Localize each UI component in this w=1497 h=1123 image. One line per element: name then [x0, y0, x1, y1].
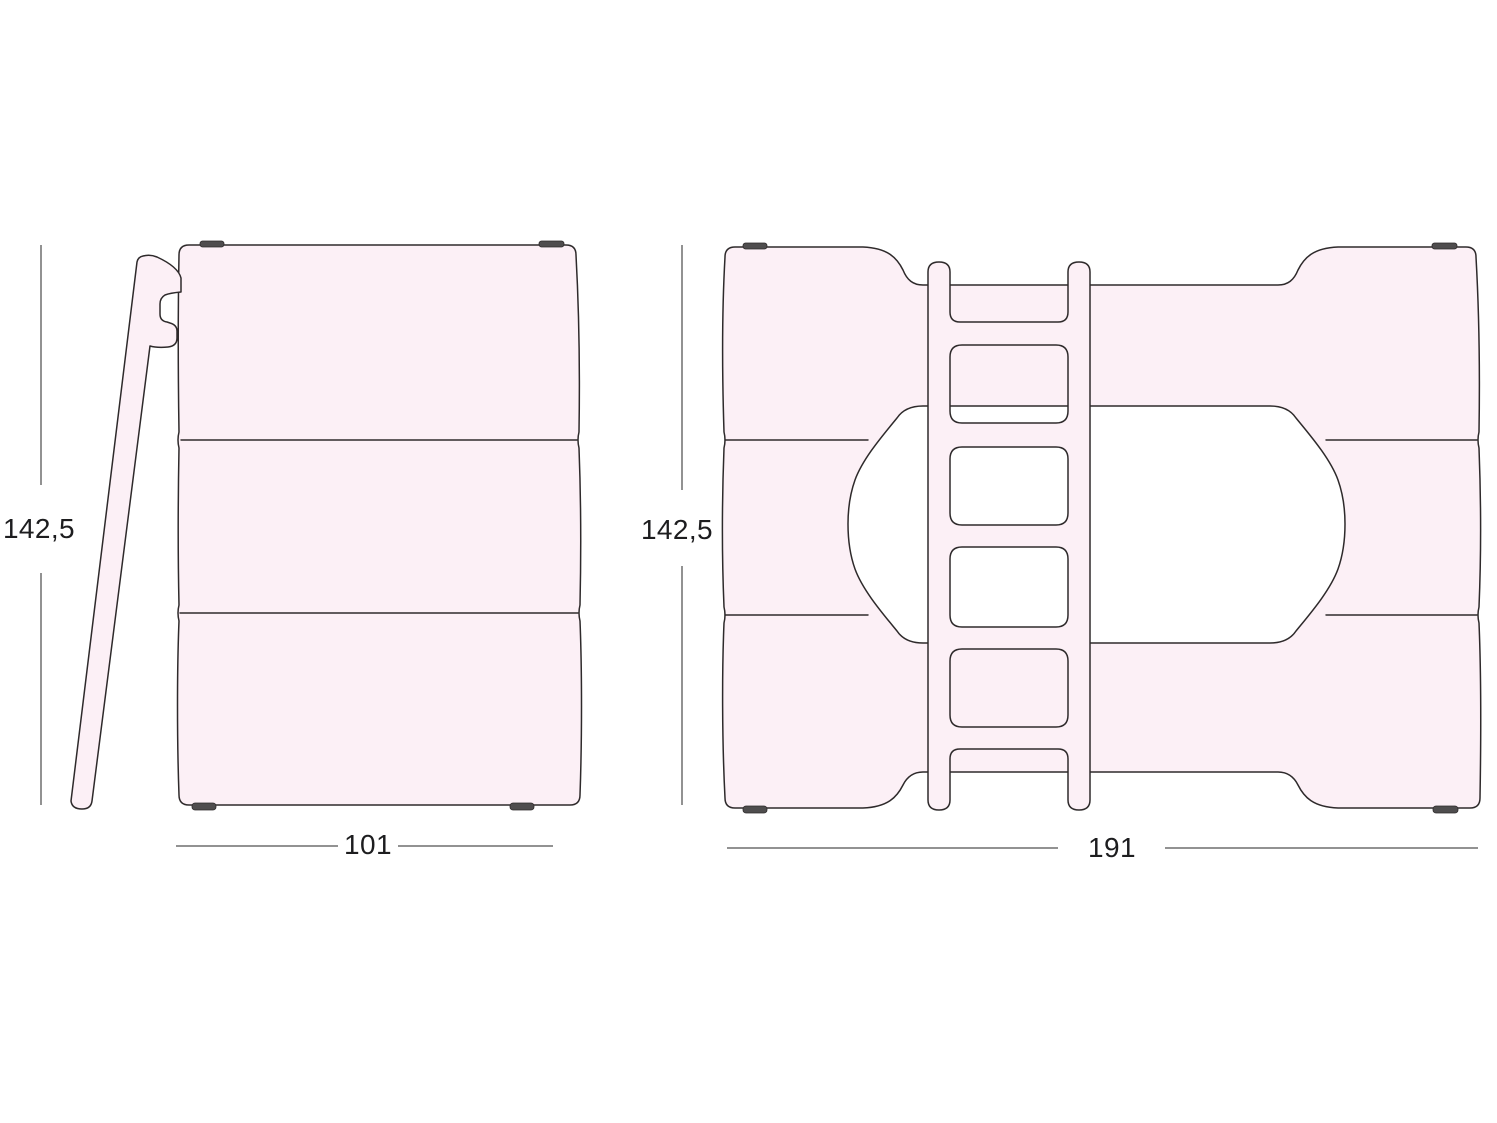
front-view-ladder	[928, 262, 1090, 810]
front-height-dimension-label: 142,5	[641, 514, 713, 546]
drawing-svg	[0, 0, 1497, 1123]
front-view-foot-right	[1433, 806, 1458, 813]
side-view-top-tab-right	[539, 241, 564, 247]
side-view-ladder	[71, 255, 181, 809]
side-width-dimension-label: 101	[344, 829, 392, 861]
side-view-top-tab-left	[200, 241, 224, 247]
technical-drawing-canvas: 142,5 101 142,5 191	[0, 0, 1497, 1123]
side-view-foot-right	[510, 803, 534, 810]
front-view-cutout	[848, 406, 1345, 643]
side-view	[71, 241, 582, 810]
side-view-body	[178, 245, 582, 805]
front-view	[723, 243, 1481, 813]
front-width-dimension-label: 191	[1088, 832, 1136, 864]
side-view-foot-left	[192, 803, 216, 810]
side-height-dimension-label: 142,5	[3, 513, 75, 545]
front-view-top-tab-right	[1432, 243, 1457, 249]
front-view-top-tab-left	[743, 243, 767, 249]
front-view-foot-left	[743, 806, 767, 813]
